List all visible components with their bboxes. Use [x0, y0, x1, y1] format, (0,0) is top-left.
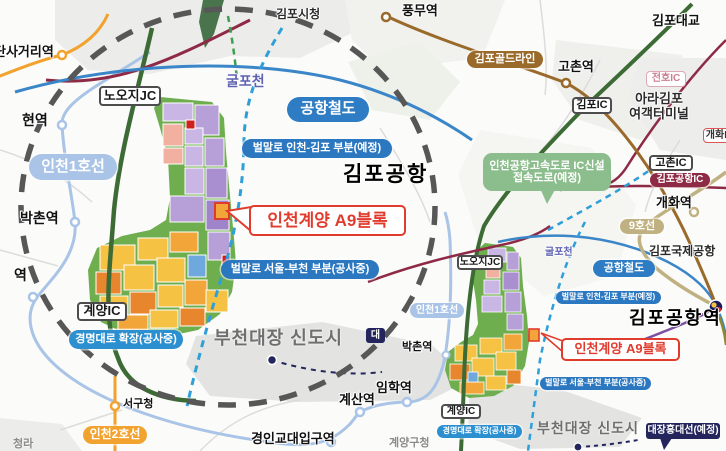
gaehwa-ic-badge: 개화IC: [703, 128, 726, 143]
cheongna-label: 청라: [13, 438, 33, 450]
arex-badge-small: 공항철도: [593, 260, 655, 277]
hyeon-station-label: 현역: [22, 113, 48, 129]
imhak-station-label: 임학역: [376, 381, 412, 396]
gimpo-airport-label: 김포공항: [343, 163, 428, 187]
incheon-line1-badge-small: 인천1호선: [410, 303, 464, 318]
gochon-station-label: 고촌역: [558, 60, 594, 75]
line9-badge: 9호선: [620, 219, 664, 234]
a9-block-callout-small: 인천계양 A9블록: [561, 338, 680, 361]
bakchon-station-label-big: 박촌역: [20, 211, 59, 227]
daejang-partial-badge: 대: [366, 328, 385, 343]
beolmallo-seoul-bucheon-badge-small: 벌말로 서울-부천 부분(공사중): [540, 377, 651, 390]
beolmallo-seoul-bucheon-badge-big: 벌말로 서울-부천 부분(공사중): [221, 260, 379, 279]
incheon-line2-badge: 인천2호선: [83, 426, 147, 444]
arex-badge-big: 공항철도: [287, 97, 369, 122]
gimpo-airport-station-label: 김포공항역: [629, 308, 722, 328]
gyeyang-ic-badge-small: 계양IC: [441, 404, 481, 419]
gaehwa-station-label: 개화역: [656, 196, 692, 211]
ara-gimpo-terminal-label: 아라김포 여객터미널: [626, 92, 692, 121]
gyeyang-gucheong-label: 계양구청: [389, 437, 429, 449]
gyesan-station-label: 계산역: [339, 393, 375, 408]
nooji-jc-badge-small: 노오지JC: [457, 255, 503, 270]
bucheon-daejang-label-big: 부천대장 신도시: [214, 328, 343, 348]
bucheon-daejang-label-small: 부천대장 신도시: [537, 421, 639, 437]
daejang-hongdae-line-badge: 대장홍대선(예정): [646, 423, 720, 439]
map: 단사거리역김포시청풍무역김포대교김포골드라인고촌역전호IC아라김포 여객터미널김…: [0, 0, 726, 451]
gimpo-ic-badge: 김포IC: [572, 97, 612, 114]
gimpo-goldline-badge: 김포골드라인: [467, 51, 543, 68]
beolmallo-incheon-gimpo-badge-small: 벌말로 인천-김포 부분(예정): [556, 291, 661, 304]
jeonho-ic-badge: 전호IC: [646, 71, 686, 87]
gyeyang-ic-badge-big: 계양IC: [77, 302, 127, 321]
gochon-ic-badge: 고촌IC: [649, 155, 693, 171]
dansageori-station-label: 단사거리역: [0, 45, 54, 60]
nooji-jc-badge-big: 노오지JC: [99, 86, 161, 106]
gyeongin-edu-station-label: 경인교대입구역: [251, 432, 335, 447]
gimpo-cityhall-label: 김포시청: [276, 8, 320, 21]
pungmu-station-label: 풍무역: [402, 4, 438, 19]
gimpo-intl-airport-label: 김포국제공항: [649, 245, 715, 258]
beolmallo-incheon-gimpo-badge-big: 벌말로 인천-김포 부분(예정): [242, 139, 392, 158]
gulpocheon-label-big: 굴포천: [226, 74, 265, 90]
gimpo-bridge-label: 김포대교: [652, 14, 700, 29]
ic-access-road-callout: 인천공항고속도로 IC신설 접속도로(예정): [483, 153, 611, 191]
station-label-partial: 역: [14, 268, 27, 284]
gulpocheon-label-small: 굴포천: [545, 247, 573, 258]
bakchon-station-label-small: 박촌역: [402, 341, 432, 353]
gyeongmyeong-badge-small: 경명대로 확장(공사중): [437, 425, 522, 438]
incheon-line1-badge-big: 인천1호선: [29, 154, 117, 180]
seogucheong-station-label: 서구청: [123, 398, 153, 410]
gimpo-airport-ic-badge: 김포공항IC: [650, 173, 710, 187]
gyeongmyeong-badge-big: 경명대로 확장(공사중): [69, 330, 183, 349]
map-labels: 단사거리역김포시청풍무역김포대교김포골드라인고촌역전호IC아라김포 여객터미널김…: [0, 0, 726, 451]
a9-block-callout-big: 인천계양 A9블록: [249, 205, 406, 236]
